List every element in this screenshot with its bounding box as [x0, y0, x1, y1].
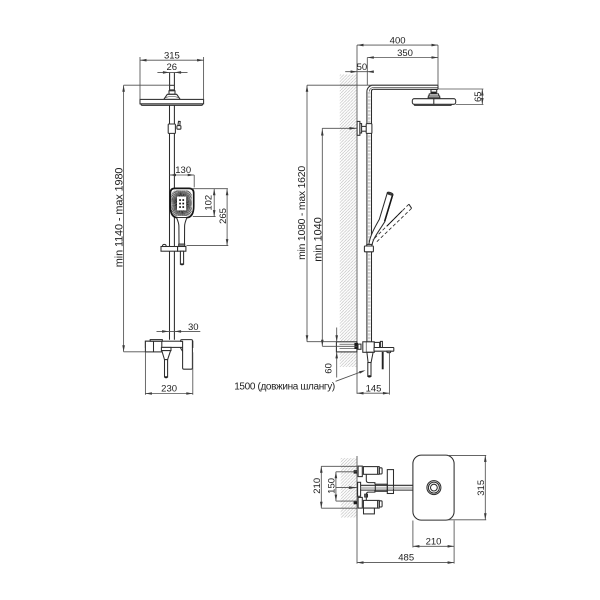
- svg-text:102: 102: [204, 195, 215, 211]
- svg-text:min 1140 - max 1980: min 1140 - max 1980: [114, 168, 126, 268]
- svg-text:145: 145: [366, 383, 382, 394]
- svg-text:350: 350: [397, 48, 413, 59]
- svg-text:30: 30: [188, 322, 199, 333]
- svg-text:150: 150: [327, 478, 338, 494]
- svg-text:1500 (довжина шлангу): 1500 (довжина шлангу): [234, 382, 335, 393]
- svg-text:130: 130: [175, 165, 191, 176]
- svg-text:26: 26: [167, 62, 178, 73]
- svg-text:315: 315: [164, 50, 180, 61]
- svg-text:400: 400: [390, 35, 406, 46]
- svg-text:315: 315: [476, 480, 487, 496]
- svg-text:210: 210: [312, 478, 323, 494]
- svg-text:50: 50: [357, 62, 368, 73]
- svg-text:210: 210: [426, 537, 442, 548]
- svg-text:230: 230: [161, 383, 177, 394]
- svg-text:min 1080 - max 1620: min 1080 - max 1620: [297, 166, 308, 260]
- svg-text:60: 60: [323, 363, 334, 374]
- svg-text:485: 485: [398, 553, 414, 564]
- svg-text:65: 65: [473, 91, 484, 102]
- svg-text:265: 265: [218, 208, 229, 224]
- svg-text:min 1040: min 1040: [312, 217, 324, 261]
